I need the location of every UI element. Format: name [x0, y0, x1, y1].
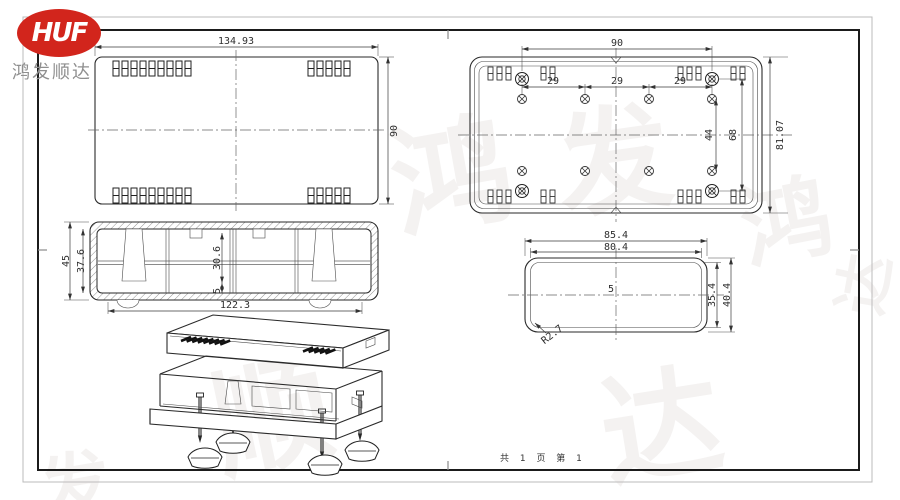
- dim-text: 134.93: [218, 36, 254, 47]
- iso-rubber-feet: [188, 433, 379, 475]
- dimension-overall-height: 90: [379, 57, 400, 204]
- dim-text: 37.6: [76, 249, 87, 273]
- top-view: 134.93 90: [88, 36, 400, 211]
- company-logo: HUF: [17, 9, 101, 57]
- dim-text: 5: [212, 288, 223, 294]
- iso-bottom-tray: [150, 406, 382, 439]
- vent-slots-bottom-left: [113, 188, 191, 203]
- vent-slots-top-right: [308, 61, 350, 76]
- vent-slots-bottom-right: [308, 188, 350, 203]
- dimension-inner-span-a: 44: [704, 99, 716, 171]
- cad-drawing: 134.93 90: [0, 0, 900, 500]
- dim-text: 68: [728, 129, 739, 141]
- section-view: 45 37.6 30.6 5 122.3: [61, 222, 378, 314]
- isometric-view: [150, 315, 389, 475]
- company-name: 鸿发顺达: [12, 58, 92, 84]
- dim-text: 81.07: [775, 120, 786, 150]
- dim-text: 44: [704, 129, 715, 141]
- drawing-sheet: 鸿 发 顺 达 鸿 达 发: [0, 0, 900, 500]
- bottom-view: 90 29 29 29 44 68: [458, 38, 795, 222]
- page-info: 共 1 页 第 1: [500, 451, 586, 464]
- dimension-inner-span-b: 68: [718, 79, 746, 191]
- vent-slots-top-left: [113, 61, 191, 76]
- dimension-corner-radius: R2.7: [535, 323, 565, 347]
- dim-text: 40.4: [722, 283, 733, 307]
- dim-text: 90: [611, 38, 623, 49]
- dim-text: 90: [389, 125, 400, 137]
- dim-text: 122.3: [220, 300, 250, 311]
- dimension-overall-width: 134.93: [95, 36, 378, 56]
- dim-text: 29: [611, 76, 623, 87]
- dim-text: 85.4: [604, 230, 628, 241]
- iso-lid: [167, 315, 389, 368]
- dim-text: 29: [674, 76, 686, 87]
- dim-text: 45: [61, 255, 72, 267]
- logo-brand-text: HUF: [32, 18, 87, 48]
- end-view: 5 85.4 80.4 35.4 40.4: [508, 230, 735, 347]
- dim-text: 30.6: [212, 246, 223, 270]
- dimension-hole-pitches: 29 29 29: [522, 76, 712, 94]
- dim-text: 80.4: [604, 242, 628, 253]
- dim-text-wall: 5: [608, 284, 614, 295]
- dim-text: 35.4: [707, 283, 718, 307]
- dim-text: 29: [547, 76, 559, 87]
- dim-text: R2.7: [540, 323, 566, 347]
- dimension-inner-height: 37.6: [76, 229, 87, 293]
